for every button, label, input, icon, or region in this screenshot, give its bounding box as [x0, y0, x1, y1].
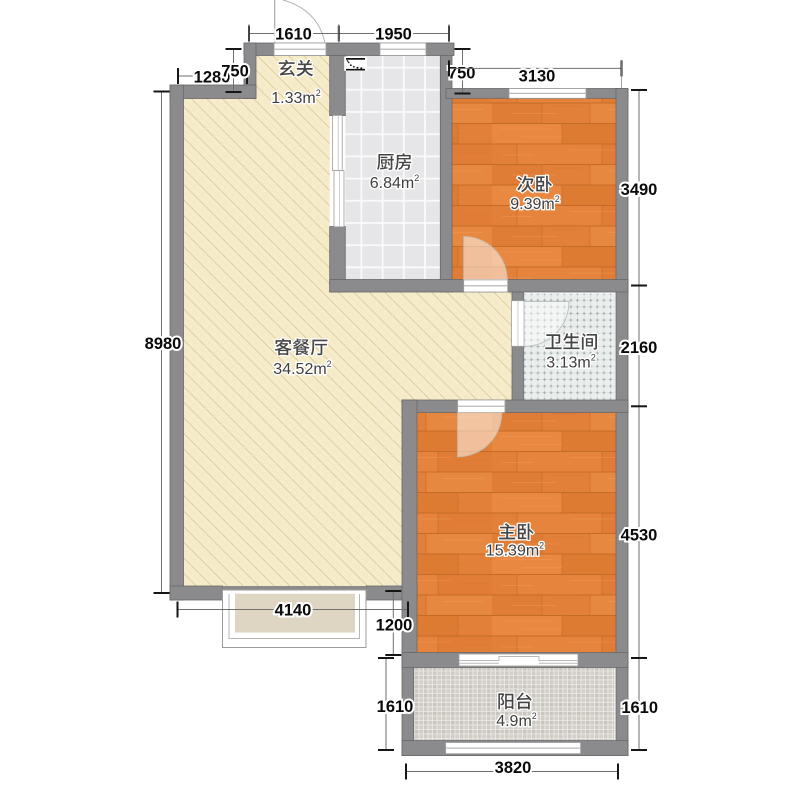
- svg-text:1.33m2: 1.33m2: [271, 88, 320, 107]
- svg-text:4530: 4530: [621, 526, 658, 544]
- svg-text:1610: 1610: [621, 699, 658, 717]
- svg-text:8980: 8980: [145, 335, 182, 353]
- svg-text:3130: 3130: [519, 67, 556, 85]
- svg-text:4.9m2: 4.9m2: [496, 711, 537, 730]
- svg-text:3490: 3490: [621, 181, 658, 199]
- svg-text:6.84m2: 6.84m2: [370, 173, 419, 192]
- svg-text:1610: 1610: [275, 25, 312, 43]
- svg-text:750: 750: [221, 62, 249, 80]
- svg-text:3.13m2: 3.13m2: [546, 353, 595, 372]
- svg-text:9.39m2: 9.39m2: [510, 194, 559, 213]
- svg-text:1950: 1950: [375, 25, 412, 43]
- svg-text:1610: 1610: [377, 698, 414, 716]
- svg-text:15.39m2: 15.39m2: [486, 541, 544, 560]
- svg-text:3820: 3820: [495, 759, 532, 777]
- svg-text:34.52m2: 34.52m2: [273, 359, 331, 378]
- svg-text:1200: 1200: [376, 616, 413, 634]
- svg-text:2160: 2160: [621, 339, 658, 357]
- svg-text:4140: 4140: [275, 601, 312, 619]
- svg-text:750: 750: [448, 65, 476, 83]
